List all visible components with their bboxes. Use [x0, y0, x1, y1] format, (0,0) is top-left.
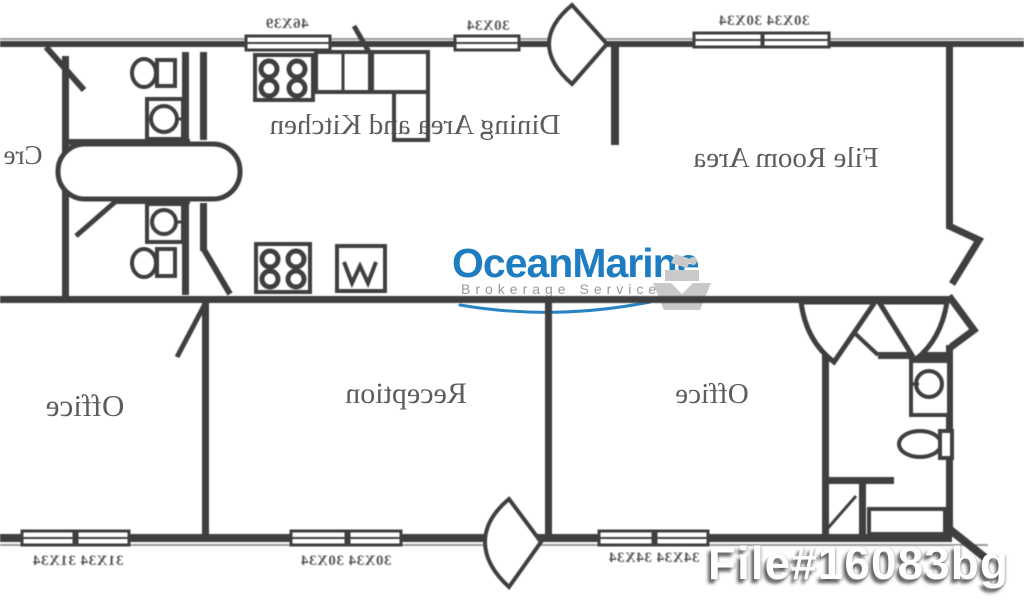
dim-label-bottom-2: 30X34 30X34: [276, 553, 416, 570]
room-label-reception: Reception: [326, 377, 486, 411]
room-label-dining-kitchen: Dining Area and Kitchen: [228, 109, 602, 142]
room-label-crew: Cre: [0, 140, 54, 171]
scanned-floorplan-page: OceanMarine Brokerage Services: [0, 0, 1024, 600]
dim-label-top-1: 46X39: [252, 16, 322, 33]
dim-label-bottom-3: 34X34 34X34: [584, 550, 724, 567]
room-labels: Cre Dining Area and Kitchen File Room Ar…: [0, 0, 1024, 600]
dim-label-top-3: 30X34 30X34: [694, 13, 834, 30]
room-label-office-left: Office: [15, 388, 155, 424]
room-label-office-right: Office: [650, 378, 774, 411]
file-number-badge: File#16083bg: [708, 536, 1009, 590]
dim-label-bottom-1: 31X34 31X34: [8, 553, 148, 570]
dim-label-top-2: 30X34: [453, 18, 523, 35]
room-label-file-room: File Room Area: [666, 142, 906, 175]
